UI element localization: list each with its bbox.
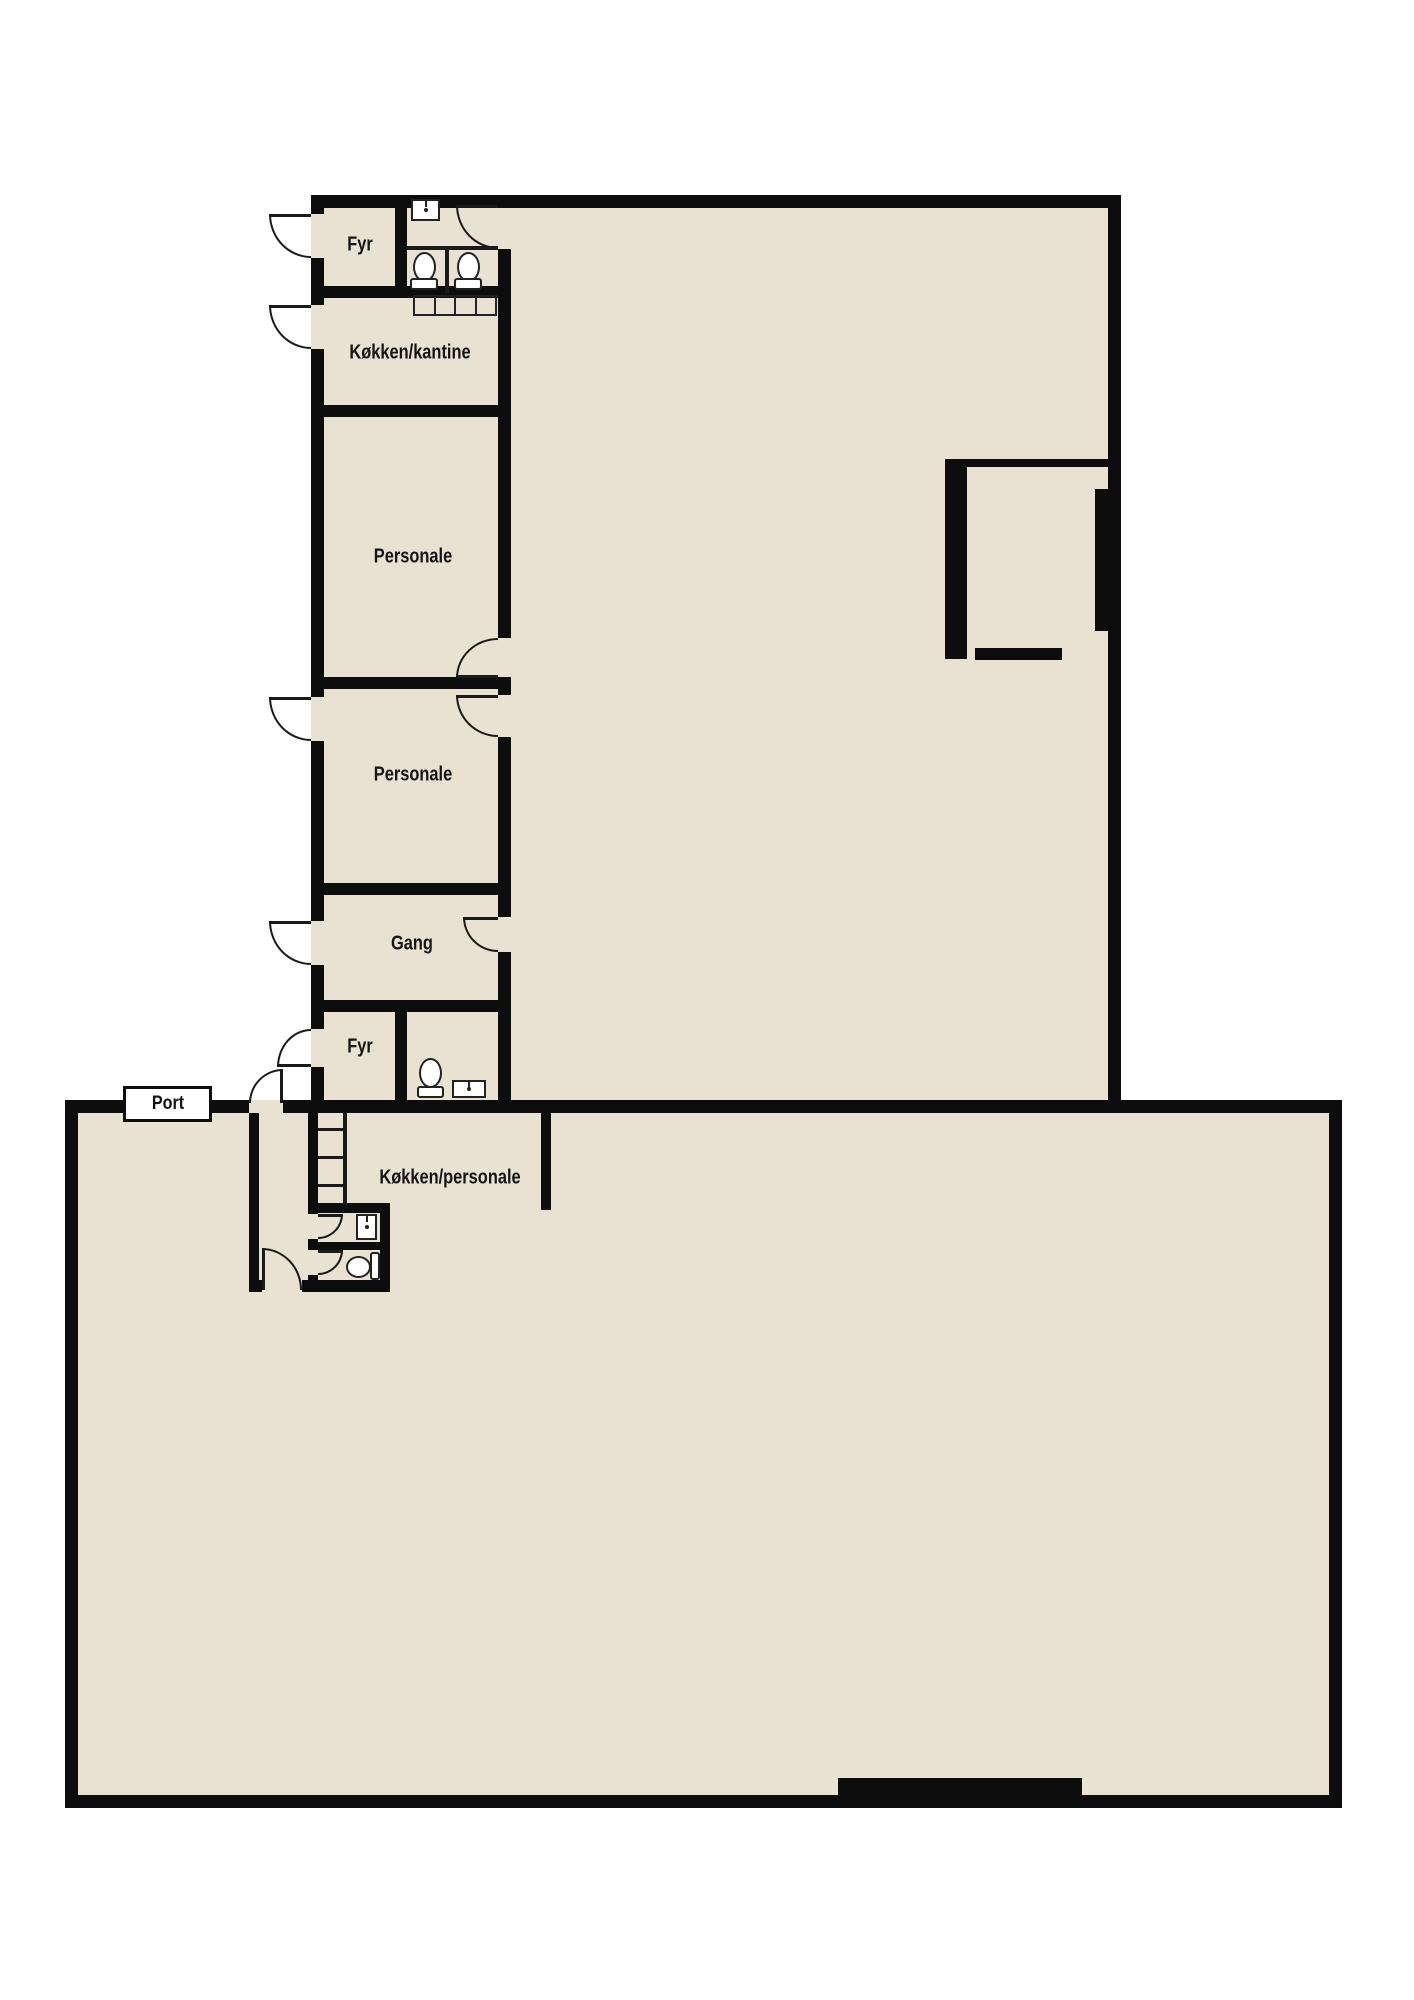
wall-kokken-personale-stub [541,1113,551,1210]
wall-corridor-right [308,1239,318,1250]
wall-lower-bottom [65,1795,1342,1808]
stairs-icon [343,1113,347,1205]
wall-alcove-top [967,459,1108,467]
wall-utility-bottom [249,1280,262,1292]
room-label-personale-2: Personale [374,764,452,787]
wall-strip-right [498,249,511,638]
wall-room-divider [311,677,511,689]
door-arc [249,1069,283,1103]
port-label-box: Port [123,1086,212,1122]
room-label-fyr-top: Fyr [347,234,373,257]
door-arc [269,921,311,965]
door-arc [269,305,311,349]
wall-upper-right [1108,195,1121,1112]
wall-fyr-bottom-divider [395,1012,407,1113]
wall-fyr-top-divider [395,208,407,298]
toilet-icon [410,278,438,290]
wall-strip-left [311,349,324,697]
wall-alcove-left [945,459,967,659]
port-label: Port [151,1093,183,1115]
room-label-fyr-bottom: Fyr [347,1036,373,1059]
kitchen-counter-icon [413,295,497,316]
door-arc [269,697,311,741]
wall-lower-left [65,1100,78,1808]
wall-lower-right [1329,1100,1342,1808]
toilet-icon [346,1256,371,1278]
stairs-icon [318,1184,347,1187]
room-label-kokken-personale: Køkken/personale [379,1167,520,1190]
wall-room-divider [311,883,511,895]
wall-alcove-bottom [975,648,1062,660]
sink-icon [452,1080,486,1098]
counter-cell [456,297,477,314]
wall-utility-bottom [302,1280,390,1292]
wall-wc-stall-divider [445,250,449,293]
stairs-icon [318,1128,347,1131]
door-arc [277,1029,311,1067]
wall-lower-top [283,1100,1342,1113]
wall-corridor-right [308,1113,318,1214]
room-label-gang: Gang [391,933,433,956]
wall-lower-top [212,1100,249,1113]
toilet-icon [454,278,482,290]
sink-icon [356,1214,377,1240]
counter-cell [477,297,496,314]
wall-room-divider [311,405,511,417]
toilet-icon [419,1058,442,1088]
wall-wc-lower-right [380,1203,390,1292]
room-label-personale-1: Personale [374,546,452,569]
floorplan-canvas: Fyr Køkken/kantine Personale Personale G… [0,0,1414,2000]
sink-icon [411,199,440,221]
door-arc [269,214,311,258]
stairs-icon [318,1156,347,1159]
room-label-kokken-kantine: Køkken/kantine [349,342,470,365]
wall-room-divider [311,1000,511,1012]
toilet-icon [370,1252,380,1280]
wall-strip-right [498,952,511,1113]
counter-cell [436,297,457,314]
gate-icon [838,1778,1082,1808]
wall-alcove-pilaster [1095,489,1108,631]
wall-strip-left [311,195,324,214]
wall-strip-left [311,965,324,1029]
wall-corridor-left [249,1113,259,1292]
wall-strip-right [498,195,511,205]
toilet-icon [417,1086,444,1098]
counter-cell [415,297,436,314]
